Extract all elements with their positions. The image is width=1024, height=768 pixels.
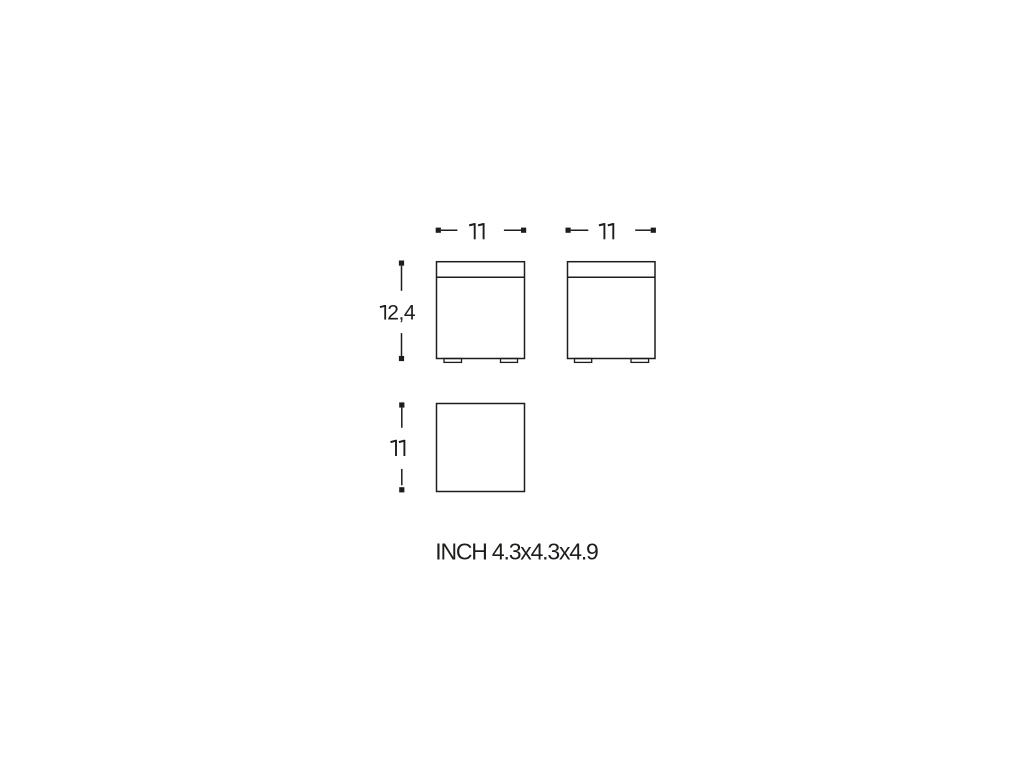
svg-text:INCH 4.3x4.3x4.9: INCH 4.3x4.3x4.9: [435, 539, 598, 565]
svg-text:2,4: 2,4: [387, 302, 416, 325]
